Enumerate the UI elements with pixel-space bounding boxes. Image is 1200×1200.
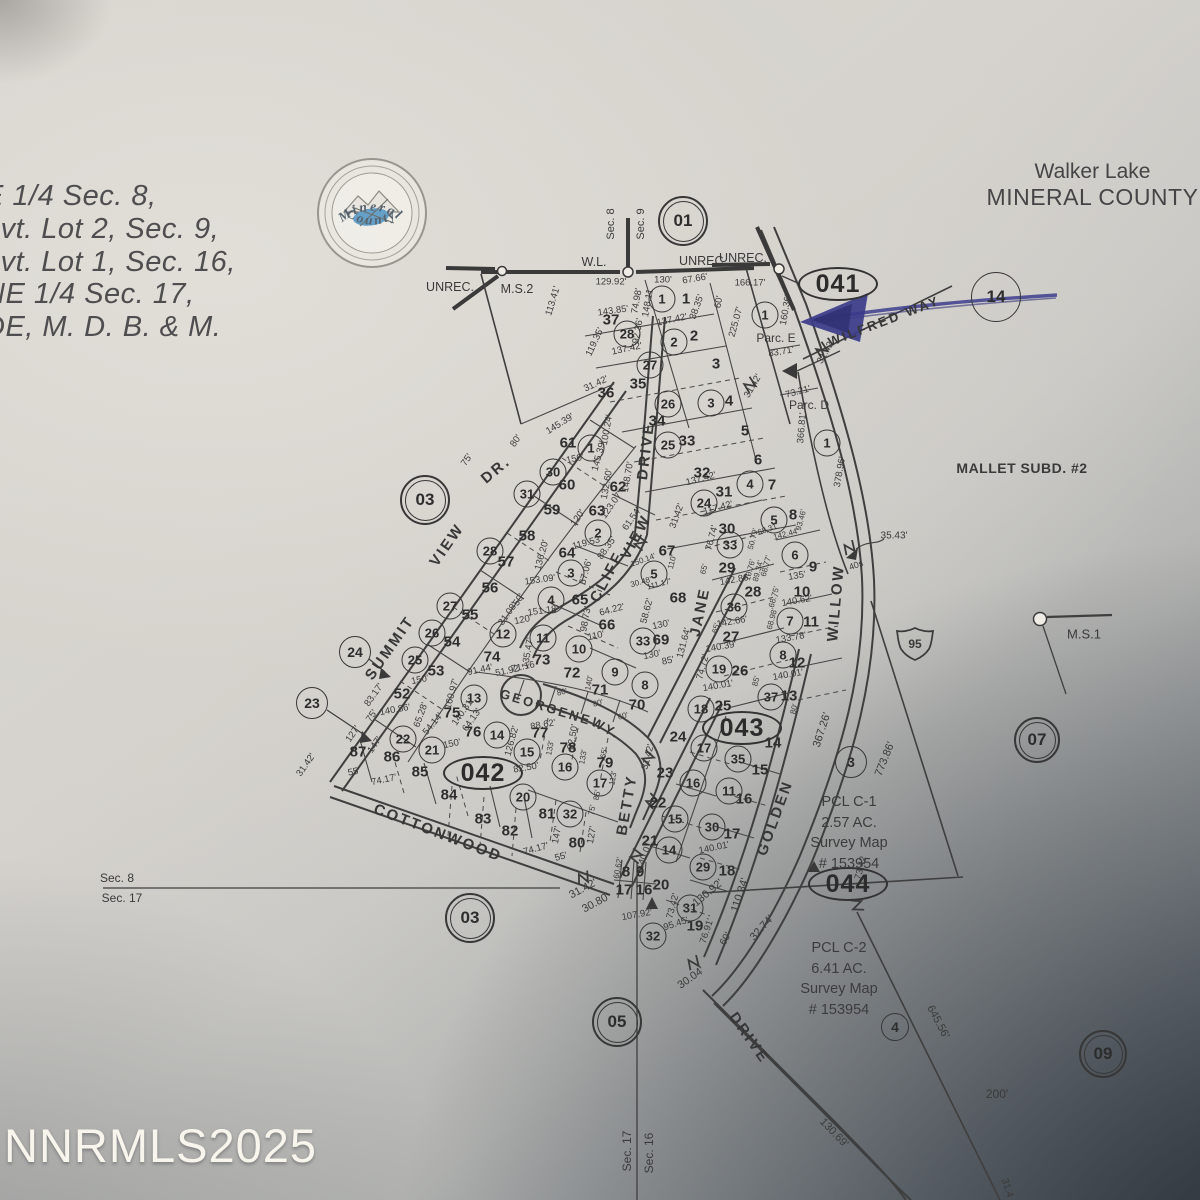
lot-circle: 16 (680, 770, 707, 797)
lot-number: 54 (444, 634, 461, 651)
section-number: 01 (663, 201, 704, 242)
block-number-oval: 041 (798, 267, 878, 301)
map-annotation: Sec. 8 (100, 871, 134, 885)
lot-number: 5 (741, 423, 749, 440)
lot-circle: 11 (530, 625, 557, 652)
lot-number: 36 (598, 385, 615, 402)
lot-number: 18 (719, 863, 736, 880)
map-title: Walker Lake MINERAL COUNTY (985, 160, 1200, 211)
lot-number: 55 (462, 607, 479, 624)
map-annotation: Parc. E (756, 331, 795, 345)
lot-circle: 13 (461, 685, 488, 712)
lot-number: 6 (754, 452, 762, 469)
lot-circle: 8 (770, 642, 797, 669)
lot-circle: 27 (637, 352, 664, 379)
lot-circle: 35 (725, 746, 752, 773)
lot-number: 32 (694, 465, 711, 482)
legal-line: ovt. Lot 2, Sec. 9, (0, 213, 284, 246)
lot-circle: 31 (514, 481, 541, 508)
lot-number: 26 (732, 663, 749, 680)
map-annotation: M.S.1 (1067, 627, 1101, 642)
lot-circle: 15 (662, 806, 689, 833)
lot-number: 67 (659, 543, 676, 560)
map-annotation: Sec. 17 (102, 891, 143, 905)
lot-circle: 26 (419, 620, 446, 647)
parcel-note-line: # 153954 (800, 1000, 877, 1021)
legal-line: NE 1/4 Sec. 17, (0, 278, 284, 311)
lot-circle: 5 (641, 561, 668, 588)
lot-circle: 16 (552, 754, 579, 781)
section-number-circle: 09 (1079, 1030, 1127, 1078)
lot-circle: 1 (578, 435, 605, 462)
mineral-county-logo: Mineral County (318, 159, 426, 267)
lot-number: 80 (569, 835, 586, 852)
lot-number: 17 (724, 826, 741, 843)
lot-circle: 31 (677, 895, 704, 922)
lot-number: 23 (657, 765, 674, 782)
lot-circle: 28 (477, 538, 504, 565)
lot-circle: 33 (630, 628, 657, 655)
us95-route-number: 95 (908, 637, 922, 651)
legal-description: E 1/4 Sec. 8, ovt. Lot 2, Sec. 9, ovt. L… (0, 180, 284, 344)
lot-number: 63 (589, 503, 606, 520)
lot-number: 16 (636, 882, 653, 899)
lot-circle: 1 (752, 302, 779, 329)
us95-highway-shield: 95 (897, 628, 933, 660)
lot-number: 3 (712, 356, 720, 373)
measurement-label: 166.17' (735, 278, 766, 289)
parcel-note: PCL C-12.57 AC.Survey Map# 153954 (810, 792, 887, 874)
lot-circle: 22 (390, 726, 417, 753)
parcel-note: PCL C-26.41 AC.Survey Map# 153954 (800, 938, 877, 1020)
map-annotation: Sec. 17 (620, 1131, 634, 1172)
map-annotation: UNREC. (719, 251, 767, 265)
map-annotation: Sec. 8 (605, 208, 617, 239)
lot-number: 24 (670, 729, 687, 746)
parcel-note-line: Survey Map (810, 833, 887, 854)
legal-line: ovt. Lot 1, Sec. 16, (0, 246, 284, 279)
lot-number: 10 (794, 584, 811, 601)
scanned-plat-map-photo: 95 Mineral County E 1/4 Sec. 8, ovt. Lot… (0, 0, 1200, 1200)
section-number: 03 (405, 480, 446, 521)
lot-circle: 10 (566, 636, 593, 663)
parcel-note-line: 6.41 AC. (800, 959, 877, 980)
lot-number: 8 (622, 864, 630, 881)
lot-number: 28 (745, 584, 762, 601)
lot-circle: 30 (699, 814, 726, 841)
section-number: 03 (450, 898, 491, 939)
lot-circle: 4 (538, 587, 565, 614)
legal-line: E 1/4 Sec. 8, (0, 180, 284, 213)
lot-circle: 32 (557, 801, 584, 828)
lot-circle: 12 (490, 621, 517, 648)
lot-number: 66 (599, 617, 616, 634)
map-title-region: Walker Lake (985, 160, 1200, 184)
lot-number: 4 (725, 393, 733, 410)
lot-number: 72 (564, 665, 581, 682)
section-number-circle: 01 (658, 196, 708, 246)
lot-number: 27 (723, 629, 740, 646)
lot-circle: 6 (782, 542, 809, 569)
lot-circle: 8 (632, 672, 659, 699)
lot-number: 81 (539, 806, 556, 823)
lot-number: 68 (670, 590, 687, 607)
lot-number: 75 (444, 705, 461, 722)
lot-number: 62 (610, 479, 627, 496)
watermark: NNRMLS2025 (4, 1118, 317, 1173)
measurement-label: 129.92' (596, 277, 627, 288)
lot-number: 85 (412, 764, 429, 781)
lot-circle: 28 (614, 321, 641, 348)
lot-number: 35 (630, 376, 647, 393)
lot-circle: 26 (655, 391, 682, 418)
lot-number: 56 (482, 580, 499, 597)
lot-circle: 7 (777, 608, 804, 635)
lot-circle: 1 (649, 286, 676, 313)
lot-circle: 2 (661, 329, 688, 356)
measurement-label: 35.43' (881, 531, 908, 542)
lot-number: 8 (789, 507, 797, 524)
reference-circle: 24 (339, 636, 371, 668)
lot-circle: 1 (814, 430, 841, 457)
section-number: 05 (597, 1002, 638, 1043)
map-annotation: W.L. (581, 255, 606, 269)
lot-circle: 15 (514, 739, 541, 766)
lot-number: 77 (532, 725, 549, 742)
lot-number: 9 (636, 864, 644, 881)
block-number-oval: 043 (702, 711, 782, 745)
map-annotation: Sec. 16 (642, 1133, 656, 1174)
lot-circle: 5 (761, 507, 788, 534)
legal-line: DE, M. D. B. & M. (0, 311, 284, 344)
lot-number: 22 (650, 795, 667, 812)
lot-circle: 25 (655, 432, 682, 459)
lot-circle: 24 (691, 490, 718, 517)
section-number: 09 (1084, 1035, 1123, 1074)
section-number-circle: 05 (592, 997, 642, 1047)
lot-circle: 14 (484, 722, 511, 749)
lot-circle: 25 (402, 647, 429, 674)
parcel-note-line: Survey Map (800, 979, 877, 1000)
section-number-circle: 03 (445, 893, 495, 943)
lot-number: 52 (394, 686, 411, 703)
lot-number: 87 (350, 744, 367, 761)
section-number-circle: 03 (400, 475, 450, 525)
map-annotation: Parc. D (789, 398, 829, 412)
measurement-label: 130' (654, 275, 672, 286)
lot-number: 59 (544, 502, 561, 519)
lot-number: 61 (560, 435, 577, 452)
parcel-note-line: PCL C-1 (810, 792, 887, 813)
lot-circle: 19 (706, 656, 733, 683)
lot-number: 76 (465, 724, 482, 741)
measurement-label: 75' (587, 804, 598, 816)
lot-circle: 3 (558, 560, 585, 587)
reference-circle: 4 (881, 1013, 909, 1041)
parcel-note-line: PCL C-2 (800, 938, 877, 959)
lot-circle: 20 (510, 784, 537, 811)
parcel-note-line: # 153954 (810, 854, 887, 875)
lot-circle: 4 (737, 471, 764, 498)
reference-circle: 14 (971, 272, 1021, 322)
lot-number: 29 (719, 560, 736, 577)
lot-number: 84 (441, 787, 458, 804)
lot-number: 9 (809, 559, 817, 576)
lot-number: 82 (502, 823, 519, 840)
map-annotation: M.S.2 (501, 282, 534, 296)
measurement-label: 200' (986, 1087, 1008, 1101)
lot-number: 15 (752, 762, 769, 779)
block-number-oval: 042 (443, 756, 523, 790)
lot-number: 53 (428, 663, 445, 680)
section-number: 07 (1019, 722, 1056, 759)
lot-circle: 33 (717, 532, 744, 559)
map-annotation: Sec. 9 (635, 208, 647, 239)
section-number-circle: 07 (1014, 717, 1060, 763)
lot-number: 11 (803, 614, 819, 631)
lot-number: 70 (629, 697, 646, 714)
lot-number: 74 (484, 649, 501, 666)
lot-circle: 37 (758, 684, 785, 711)
lot-circle: 17 (587, 770, 614, 797)
lot-circle: 21 (419, 737, 446, 764)
map-annotation: UNREC. (426, 280, 474, 294)
lot-circle: 9 (602, 659, 629, 686)
lot-number: 1 (682, 291, 690, 308)
lot-number: 65 (572, 592, 589, 609)
lot-number: 17 (616, 882, 633, 899)
lot-number: 73 (534, 652, 551, 669)
lot-circle: 14 (656, 837, 683, 864)
lot-circle: 36 (721, 594, 748, 621)
lot-circle: 11 (716, 778, 743, 805)
lot-number: 2 (690, 328, 698, 345)
lot-number: 31 (716, 484, 733, 501)
measurement-label: 60' (713, 295, 726, 309)
map-title-county: MINERAL COUNTY (985, 184, 1200, 211)
reference-circle: 3 (835, 746, 867, 778)
lot-number: 71 (592, 682, 609, 699)
reference-circle: 23 (296, 687, 328, 719)
lot-circle: 2 (585, 520, 612, 547)
lot-circle: 29 (690, 854, 717, 881)
map-annotation: MALLET SUBD. #2 (956, 460, 1087, 476)
lot-number: 7 (768, 477, 776, 494)
lot-circle: 3 (698, 390, 725, 417)
lot-circle: 27 (437, 593, 464, 620)
lot-number: 58 (519, 528, 536, 545)
lot-number: 20 (653, 877, 670, 894)
lot-circle: 30 (540, 459, 567, 486)
parcel-note-line: 2.57 AC. (810, 813, 887, 834)
lot-circle: 32 (640, 923, 667, 950)
lot-number: 83 (475, 811, 492, 828)
